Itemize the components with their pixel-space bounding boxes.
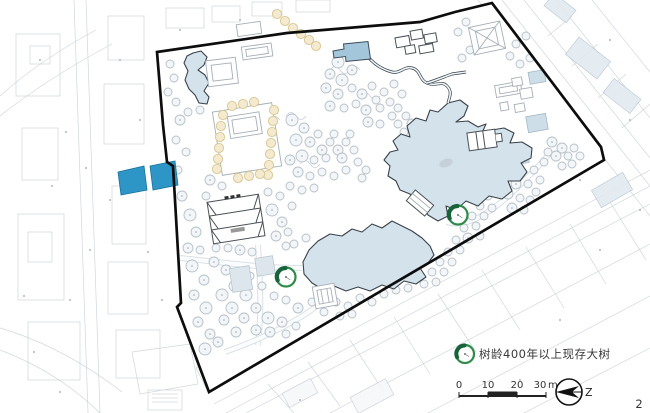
ornamental-tree [265,149,274,158]
tree-trunk-dot [281,321,283,323]
tree-canopy [394,104,402,112]
hall-north-c [236,21,261,36]
tree-canopy [248,248,256,256]
tree-canopy [564,152,572,160]
tree-canopy [286,182,294,190]
tree-trunk-dot [281,221,283,223]
tree-canopy [330,172,338,180]
tree-trunk-dot [341,157,343,159]
tree-trunk-dot [205,307,207,309]
tree-trunk-dot [203,279,205,281]
ornamental-tree [267,127,276,136]
tree-trunk-dot [367,121,369,123]
heritage-tree-marker [277,268,296,287]
tree-canopy [184,108,192,116]
tree-trunk-dot [341,79,343,81]
fabric-dot [559,319,561,321]
tree-canopy [454,28,462,36]
ornamental-tree [266,138,275,147]
tree-trunk-dot [309,141,311,143]
tree-canopy [376,120,384,128]
tree-canopy [258,282,266,290]
tree-canopy [202,192,210,200]
tree-canopy [530,166,538,174]
tree-trunk-dot [197,321,199,323]
tree-trunk-dot [337,93,339,95]
city-block [565,37,610,79]
fabric-dot [629,119,631,121]
tree-canopy [362,166,370,174]
tree-canopy [170,74,178,82]
tree-canopy [480,212,488,220]
tree-trunk-dot [179,119,181,121]
tree-canopy [428,268,436,276]
city-block [350,379,394,413]
tree-canopy [460,224,468,232]
tree-trunk-dot [231,307,233,309]
tree-canopy [448,258,456,266]
tree-canopy [224,244,232,252]
ornamental-tree [280,16,289,25]
tree-canopy [440,268,448,276]
tree-trunk-dot [289,159,291,161]
north-arrow: Z [556,379,593,405]
tree-canopy [330,130,338,138]
tree-trunk-dot [269,331,271,333]
tree-trunk-dot [239,249,241,251]
tree-trunk-dot [301,155,303,157]
tree-canopy [212,244,220,252]
tree-trunk-dot [181,195,183,197]
square-pavilion-south [312,283,337,308]
ornamental-tree [268,116,277,125]
tree-canopy [512,40,520,48]
tree-canopy [302,234,310,242]
tree-trunk-dot [225,269,227,271]
tree-canopy [342,138,350,146]
city-block [282,378,318,407]
tree-canopy [172,136,180,144]
tree-trunk-dot [361,93,363,95]
tree-canopy [472,222,480,230]
tree-trunk-dot [511,207,513,209]
tree-canopy [576,152,584,160]
page-number: 2 [635,397,642,411]
ornamental-tree [214,143,223,152]
tree-canopy [288,202,296,210]
tree-canopy [372,96,380,104]
heritage-tree-marker [449,206,468,225]
tree-trunk-dot [325,87,327,89]
fabric-dot [609,39,611,41]
tree-canopy [314,130,322,138]
tree-canopy [182,148,190,156]
fabric-dot [65,131,67,133]
tree-canopy [376,104,384,112]
north-label: Z [585,386,593,399]
fabric-dot [599,249,601,251]
fabric-dot [85,167,87,169]
tree-canopy [298,186,306,194]
ornamental-tree [215,132,224,141]
tree-canopy [394,120,402,128]
ornamental-tree [264,160,273,169]
tree-canopy [568,160,576,168]
tree-canopy [164,88,172,96]
tree-trunk-dot [515,183,517,185]
tree-trunk-dot [297,307,299,309]
tree-canopy [342,166,350,174]
tree-trunk-dot [351,69,353,71]
fabric-dot [89,249,91,251]
tree-canopy [264,188,272,196]
ornamental-tree [255,169,264,178]
tree-trunk-dot [255,307,257,309]
tree-trunk-dot [187,247,189,249]
fabric-dot [139,119,141,121]
tree-trunk-dot [267,317,269,319]
ornamental-tree [269,105,278,114]
tree-canopy [380,88,388,96]
tree-trunk-dot [189,214,191,216]
tree-canopy [172,98,180,106]
tree-canopy [402,112,410,120]
tree-canopy [290,240,298,248]
tree-canopy [292,322,300,330]
tree-canopy [218,182,226,190]
tree-trunk-dot [275,235,277,237]
tree-trunk-dot [243,317,245,319]
tree-canopy [358,174,366,182]
tree-canopy [488,204,496,212]
tree-canopy [346,130,354,138]
tree-trunk-dot [209,333,211,335]
fabric-dot [51,185,53,187]
tree-canopy [388,112,396,120]
tree-trunk-dot [223,319,225,321]
tree-trunk-dot [221,294,223,296]
city-block [603,78,641,113]
tree-canopy [458,54,466,62]
tree-canopy [532,188,540,196]
ornamental-tree [212,164,221,173]
tree-trunk-dot [329,105,331,107]
fabric-dot [179,29,181,31]
tree-canopy [540,158,548,166]
tree-canopy [348,84,356,92]
fabric-dot [579,179,581,181]
tree-canopy [276,192,284,200]
fabric-dot [33,351,35,353]
fabric-dot [23,295,25,297]
tree-canopy [282,330,290,338]
tree-trunk-dot [271,209,273,211]
fabric-dot [109,199,111,201]
ornamental-tree [233,173,242,182]
blue-block-west-a [118,166,147,195]
ornamental-tree [311,41,320,50]
tree-canopy [522,32,530,40]
ornamental-tree [216,121,225,130]
ornamental-tree [244,171,253,180]
tree-canopy [506,52,514,60]
tree-canopy [452,236,460,244]
tree-canopy [318,168,326,176]
tree-canopy [544,148,552,156]
tree-trunk-dot [555,155,557,157]
tree-trunk-dot [337,149,339,151]
tree-canopy [404,284,412,292]
tree-canopy [320,308,328,316]
tree-canopy [524,180,532,188]
fabric-dot [119,59,121,61]
tree-canopy [350,146,358,154]
scale-label-30: 30 [534,380,547,391]
tree-trunk-dot [291,119,293,121]
tree-canopy [310,156,318,164]
tree-canopy [322,154,330,162]
tree-trunk-dot [321,149,323,151]
tree-canopy [340,104,348,112]
site-plan-drawing: 树龄400年以上现存大树 0 10 20 30 m Z 2 [0,0,650,413]
tree-trunk-dot [337,61,339,63]
tree-trunk-dot [195,231,197,233]
tree-canopy [468,212,476,220]
tree-trunk-dot [329,73,331,75]
legend-heritage-marker [456,345,474,363]
tree-trunk-dot [245,294,247,296]
fabric-dot [59,391,61,393]
city-block [591,172,632,207]
tree-trunk-dot [209,179,211,181]
tree-canopy [326,138,334,146]
tree-canopy [196,106,204,114]
fabric-dot [639,209,641,211]
tree-canopy [196,246,204,254]
tree-canopy [462,18,470,26]
tree-canopy [310,184,318,192]
tree-canopy [352,100,360,108]
tree-canopy [284,228,292,236]
tree-trunk-dot [255,329,257,331]
hall-north-a [206,57,239,86]
tree-canopy [166,60,174,68]
scale-label-20: 20 [511,380,524,391]
scale-label-10: 10 [482,380,495,391]
scale-label-0: 0 [456,380,462,391]
tree-canopy [386,98,394,106]
tree-trunk-dot [365,109,367,111]
square-pavilion-northeast [468,21,505,55]
fabric-dot [69,299,71,301]
tree-trunk-dot [204,348,206,350]
fabric-dot [161,299,163,301]
tree-canopy [536,176,544,184]
scale-bar: 0 10 20 30 m [456,380,558,398]
tree-trunk-dot [217,341,219,343]
heritage-tree-marker [456,345,474,363]
tree-canopy [282,296,290,304]
tree-trunk-dot [561,147,563,149]
tree-trunk-dot [551,141,553,143]
tree-canopy [390,80,398,88]
tree-trunk-dot [193,294,195,296]
tree-canopy [306,172,314,180]
tree-canopy [282,242,290,250]
tree-canopy [270,292,278,300]
tree-canopy [398,90,406,98]
tree-canopy [516,194,524,202]
scale-block [488,392,517,397]
fabric-dot [147,251,149,253]
tree-trunk-dot [235,331,237,333]
ornamental-tree [213,154,222,163]
tree-canopy [570,144,578,152]
tree-canopy [368,82,376,90]
fabric-dot [239,19,241,21]
ornamental-tree [218,110,227,119]
tree-trunk-dot [295,139,297,141]
tree-trunk-dot [191,265,193,267]
fabric-dot [299,399,301,401]
tree-trunk-dot [297,171,299,173]
tree-canopy [354,158,362,166]
ornamental-tree [227,101,236,110]
tree-canopy [516,60,524,68]
fabric-dot [39,59,41,61]
legend-label: 树龄400年以上现存大树 [479,347,610,361]
tree-canopy [420,280,428,288]
ornamental-tree [272,9,281,18]
tree-canopy [432,278,440,286]
ornamental-tree [249,97,258,106]
legend: 树龄400年以上现存大树 [456,345,610,363]
ornamental-tree [238,99,247,108]
tree-trunk-dot [213,261,215,263]
tree-canopy [558,162,566,170]
tree-trunk-dot [303,127,305,129]
